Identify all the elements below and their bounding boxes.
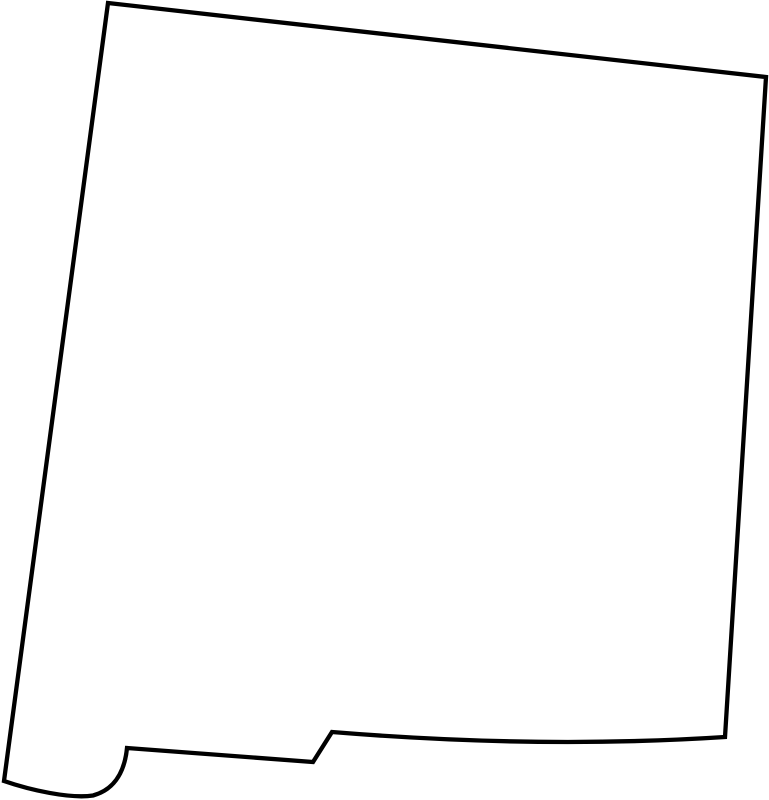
- new-mexico-outline-path: [4, 3, 766, 796]
- new-mexico-map: [0, 0, 769, 800]
- page: { "page": { "width_px": 769, "height_px"…: [0, 0, 769, 800]
- map-canvas: [0, 0, 769, 800]
